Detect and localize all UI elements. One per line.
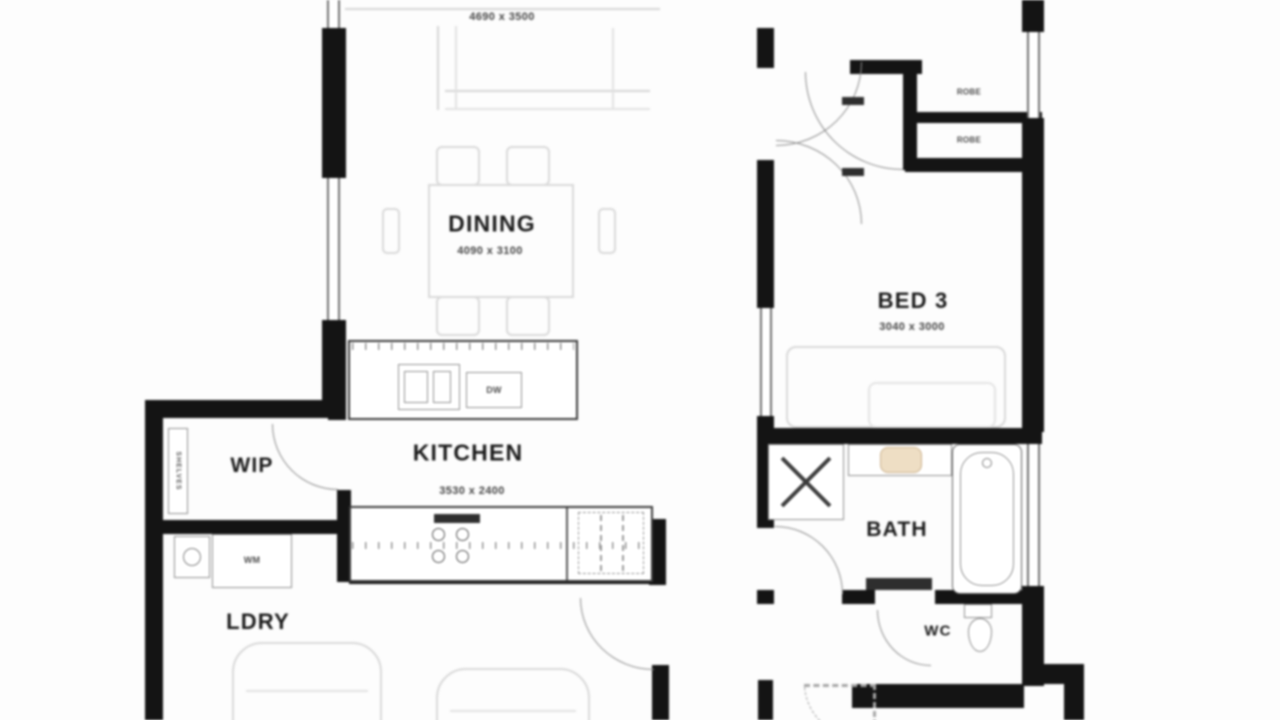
fridge-space xyxy=(578,512,644,574)
wall-outer-right-a xyxy=(1022,0,1044,32)
bath-label: BATH xyxy=(866,518,928,542)
cooktop-burner xyxy=(456,550,469,563)
wall-ldry-top xyxy=(161,520,337,534)
dining-dimension: 4090 x 3100 xyxy=(457,245,523,257)
washing-machine-label: WM xyxy=(244,555,261,565)
kitchen-dimension: 3530 x 2400 xyxy=(439,485,505,497)
vanity-basin xyxy=(880,447,922,473)
kitchen-sink-bowl xyxy=(404,371,428,403)
wip-door-arc xyxy=(272,424,338,490)
wall-bed3-bath xyxy=(760,428,1042,444)
wall-wip-top xyxy=(145,400,345,418)
wall-wc-bottom xyxy=(852,684,1024,708)
dining-chair xyxy=(436,296,480,336)
dining-label: DINING xyxy=(448,211,536,238)
dining-chair-side xyxy=(382,208,400,254)
wall-left-upper xyxy=(322,28,346,178)
wall-hall-top xyxy=(757,28,774,68)
toilet-cistern xyxy=(964,604,992,618)
window-dining xyxy=(327,178,340,320)
car-windshield-line xyxy=(450,710,576,712)
wall-post-island xyxy=(328,388,346,420)
robe-bottom-label: ROBE xyxy=(957,136,981,145)
window-hall xyxy=(760,308,772,416)
dining-table xyxy=(428,184,574,298)
section-cut-line xyxy=(345,8,660,10)
cooktop-burner xyxy=(432,550,445,563)
living-dimension: 4690 x 3500 xyxy=(469,11,535,23)
bed3-label: BED 3 xyxy=(878,288,949,314)
car-outline xyxy=(436,668,590,720)
car-windshield-line xyxy=(246,690,368,692)
car-outline xyxy=(232,642,382,720)
shower-x-icon xyxy=(768,444,844,520)
bench-tick-marks xyxy=(352,343,574,350)
ldry-label: LDRY xyxy=(226,609,290,635)
bathtub-inner xyxy=(960,452,1014,586)
bathtub-drain xyxy=(982,458,992,468)
wall-outer-right-b xyxy=(1022,118,1044,432)
wip-label: WIP xyxy=(230,454,273,478)
sofa-outline xyxy=(445,108,650,110)
window-robe xyxy=(1027,32,1040,118)
wall-hall-mid xyxy=(757,160,774,308)
robe-top-label: ROBE xyxy=(957,88,981,97)
bath-door-leaf xyxy=(866,578,932,590)
fridge-space-line xyxy=(600,515,602,571)
door-leaf xyxy=(842,168,864,176)
kitchen-island-bench xyxy=(348,340,578,420)
wc-door-arc xyxy=(877,610,931,666)
wall-hall-bottom-post xyxy=(758,680,773,720)
kitchen-label: KITCHEN xyxy=(413,440,524,467)
window-top-left xyxy=(327,0,340,28)
toilet-bowl xyxy=(968,618,992,652)
sofa-outline xyxy=(437,26,439,110)
dining-chair-side xyxy=(598,208,616,254)
wall-outer-right-d xyxy=(1064,664,1084,720)
dining-chair xyxy=(436,146,480,186)
cooktop-burner xyxy=(432,528,445,541)
cooktop-burner xyxy=(456,528,469,541)
sofa-outline xyxy=(455,26,457,110)
sofa-outline xyxy=(445,90,650,92)
bed-cover-outline xyxy=(868,382,996,428)
cooktop-controls xyxy=(434,514,480,523)
wall-outer-left xyxy=(145,400,163,720)
pantry-shelves-label: SHELVES xyxy=(175,451,182,490)
wall-bath-bottom-a xyxy=(842,590,875,604)
dining-chair xyxy=(506,296,550,336)
bed3-dimension: 3040 x 3000 xyxy=(879,321,945,333)
wall-bath-left-post xyxy=(757,590,774,604)
garage-door-arc xyxy=(580,598,654,670)
fridge-space-line xyxy=(622,515,624,571)
floor-plan-screenshot: 4690 x 3500 DINING 4090 x 3100 DW KITCHE… xyxy=(0,0,1280,720)
bench-divider xyxy=(566,508,568,580)
sofa-outline xyxy=(612,28,614,108)
floor-plan: 4690 x 3500 DINING 4090 x 3100 DW KITCHE… xyxy=(0,0,1280,720)
kitchen-sink-bowl xyxy=(433,371,451,403)
dining-chair xyxy=(506,146,550,186)
bath-door-arc xyxy=(775,526,843,594)
dishwasher-label: DW xyxy=(486,385,502,395)
window-bath xyxy=(1027,444,1040,586)
laundry-trough-basin xyxy=(183,548,201,566)
entry-door-arc xyxy=(804,684,876,720)
wall-post-hall-lower xyxy=(652,665,669,720)
